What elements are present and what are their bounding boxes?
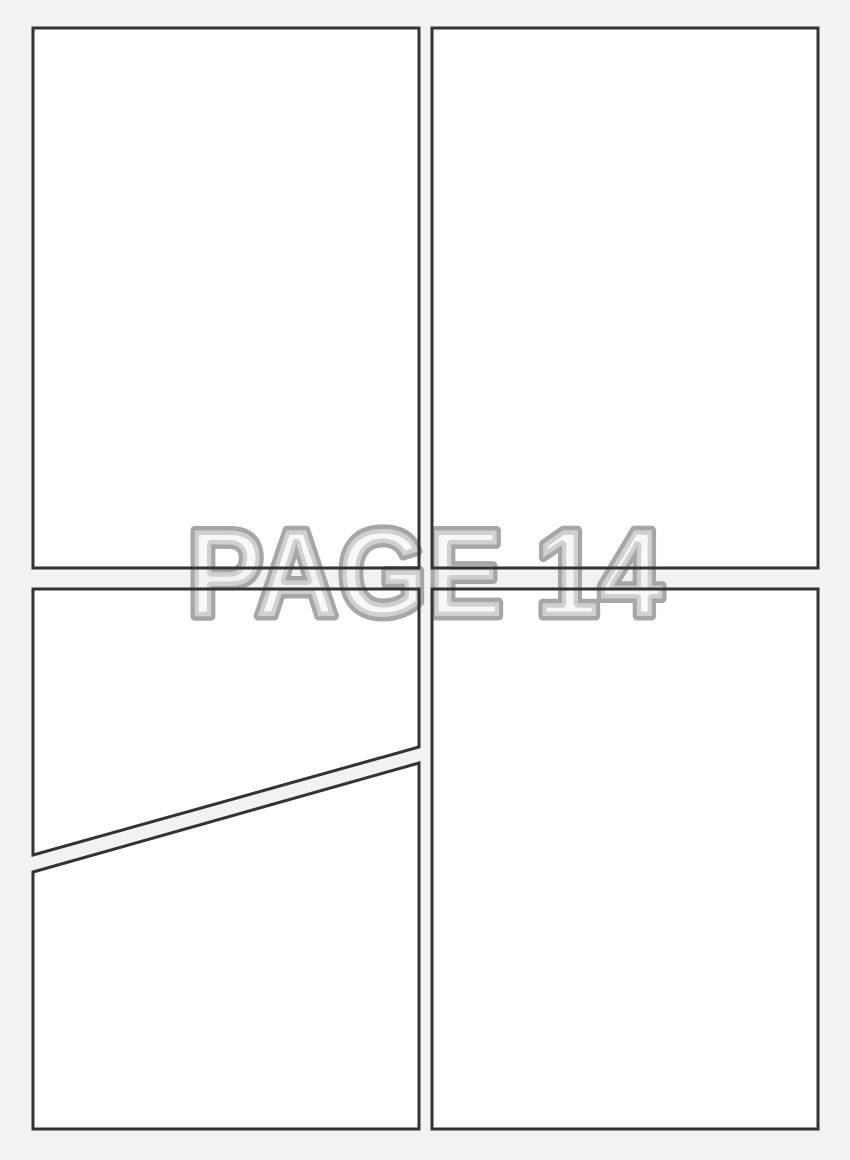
page-number-watermark: PAGE 14 xyxy=(187,505,663,643)
page-canvas: PAGE 14 xyxy=(0,0,850,1160)
panel-top-right xyxy=(432,28,818,568)
panel-bottom-right xyxy=(432,589,818,1129)
panel-top-left xyxy=(33,28,419,568)
comic-page-template: PAGE 14 xyxy=(0,0,850,1160)
